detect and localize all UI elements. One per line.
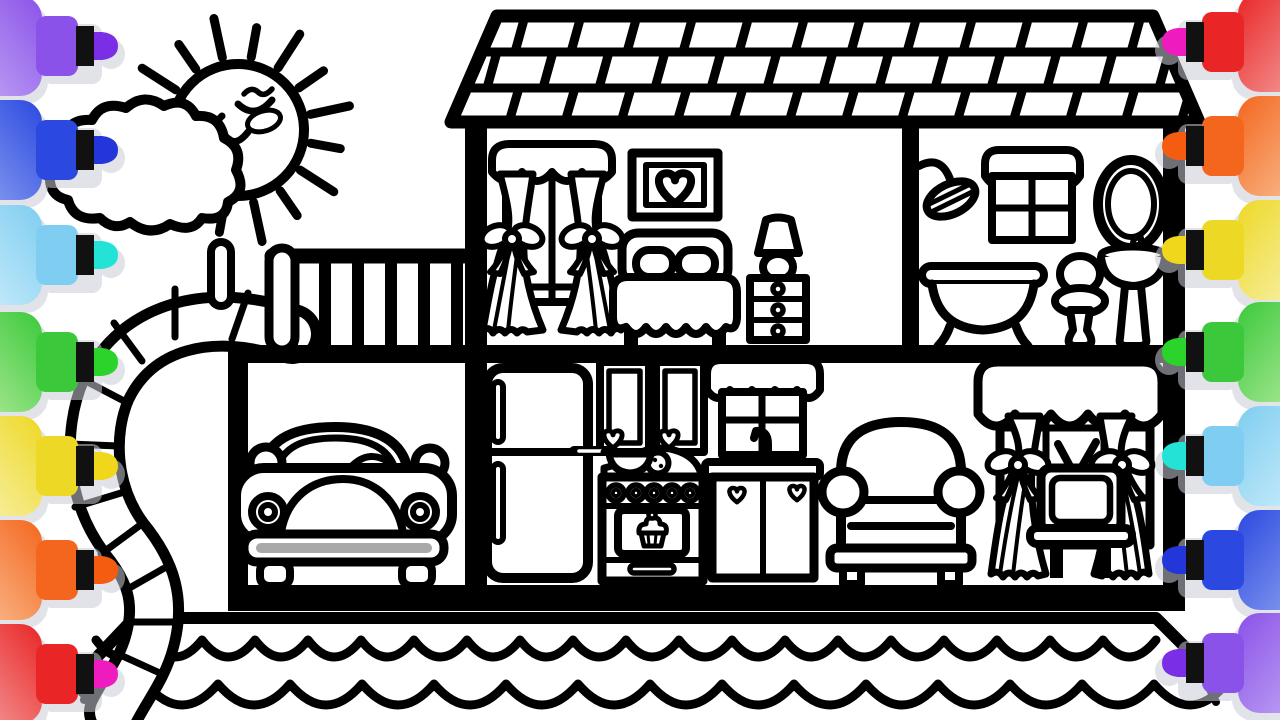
marker-body: [1238, 200, 1280, 300]
armchair-arm-right: [938, 471, 980, 513]
marker-collar: [1186, 643, 1204, 683]
car-wheel-left: [260, 562, 290, 586]
marker-neck: [1202, 12, 1244, 72]
marker-body: [1238, 0, 1280, 92]
interior-wall-upper: [902, 125, 919, 345]
house-base: [228, 585, 1185, 611]
stove: [574, 448, 703, 581]
marker-body: [0, 312, 42, 412]
bed-foot-left: [624, 330, 638, 345]
bathtub-rim: [922, 266, 1044, 284]
marker-body: [0, 100, 42, 200]
marker-collar: [76, 342, 94, 382]
marker-neck: [36, 120, 78, 180]
marker-body: [0, 416, 42, 516]
pedestal-sink: [1101, 238, 1165, 346]
wave-row-2: [74, 684, 1226, 705]
marker-neck: [36, 644, 78, 704]
coloring-page: [0, 0, 1280, 720]
bed-foot-right: [712, 330, 726, 345]
cupcake-cup: [641, 533, 664, 546]
shower-head-icon: [921, 174, 981, 224]
sun-ray: [214, 19, 222, 58]
marker-collar: [76, 26, 94, 66]
kitchen-window: [707, 360, 820, 455]
kitchen: [487, 360, 820, 581]
timer-dot: [659, 464, 663, 468]
railing-post: [269, 248, 295, 350]
marker-neck: [1202, 116, 1244, 176]
armchair-foot-left: [843, 568, 861, 584]
wave-row-1: [96, 640, 1156, 657]
tv-stand-leg-right: [1098, 544, 1111, 578]
garage-car: [236, 427, 452, 586]
marker-collar: [76, 550, 94, 590]
marker-left-purple: [0, 0, 125, 104]
stove-knobs: [608, 485, 698, 501]
bed: [613, 233, 737, 345]
wall-cabinet-2: [656, 362, 704, 452]
marker-neck: [36, 16, 78, 76]
heart-picture: [632, 153, 718, 217]
marker-body: [0, 520, 42, 620]
sun-ray: [311, 143, 341, 148]
bed-blanket: [613, 277, 737, 334]
car-wheel-right: [402, 562, 432, 586]
marker-neck: [1202, 220, 1244, 280]
tv-stand-top: [1030, 528, 1132, 544]
marker-neck: [36, 225, 78, 285]
bedroom: [478, 144, 806, 345]
marker-body: [1238, 302, 1280, 402]
marker-body: [0, 205, 42, 305]
marker-body: [1238, 510, 1280, 610]
mirror-glass: [1108, 171, 1154, 237]
tv-stand-leg-left: [1050, 544, 1063, 578]
marker-collar: [76, 130, 94, 170]
shower: [919, 162, 981, 223]
living-room: [822, 362, 1162, 584]
shower-arm: [919, 162, 951, 182]
bedroom-window: [478, 144, 625, 333]
armchair-foot-right: [941, 568, 959, 584]
ground-edges: [84, 656, 1216, 702]
marker-body: [0, 0, 42, 96]
marker-neck: [1202, 426, 1244, 486]
tv-screen: [1052, 478, 1110, 522]
sun-ray: [278, 34, 300, 68]
marker-neck: [36, 540, 78, 600]
car-bumper-stripe: [256, 543, 432, 553]
marker-body: [1238, 613, 1280, 713]
sun-ray: [300, 170, 334, 192]
sun-ray: [179, 44, 196, 69]
heart-knob-icon: [789, 486, 804, 500]
coloring-page-canvas: [0, 0, 1280, 720]
bathroom-window: [985, 150, 1080, 240]
marker-neck: [36, 436, 78, 496]
frying-pan: [609, 454, 651, 473]
marker-body: [0, 624, 42, 720]
roof: [451, 16, 1199, 122]
marker-collar: [76, 446, 94, 486]
sun-ray: [299, 71, 324, 88]
stove-drawer-handle: [630, 565, 674, 573]
car-headlight-left-inner: [261, 505, 275, 519]
sun-ray: [310, 106, 349, 114]
marker-collar: [1186, 540, 1204, 580]
heart-knob-icon: [729, 488, 744, 502]
toilet: [1055, 256, 1105, 346]
cupcake-cherry: [649, 512, 656, 519]
marker-neck: [1202, 322, 1244, 382]
marker-body: [1238, 96, 1280, 196]
marker-body: [1238, 406, 1280, 506]
bed-pillow-right: [678, 250, 715, 277]
sun-ray: [280, 191, 297, 216]
sun-eyebrow: [244, 89, 272, 94]
heart-knob-icon: [604, 431, 622, 448]
sink-pedestal: [1120, 286, 1147, 346]
sun-ray: [254, 202, 262, 241]
marker-collar: [1186, 230, 1204, 270]
marker-neck: [1202, 633, 1244, 693]
fridge: [487, 368, 588, 578]
bathtub: [922, 266, 1044, 346]
bed-pillow-left: [636, 250, 673, 277]
drawer-knob: [773, 284, 783, 294]
fridge-handle-top: [493, 382, 503, 442]
lamp-shade: [758, 218, 799, 254]
vanity-mirror: [1098, 160, 1164, 248]
marker-collar: [1186, 22, 1204, 62]
drawer-knob: [773, 326, 783, 336]
drawer-knob: [773, 305, 783, 315]
armchair-arm-left: [822, 471, 864, 513]
armchair: [822, 422, 980, 584]
sun-ray: [251, 28, 256, 58]
marker-collar: [1186, 126, 1204, 166]
fridge-handle-bottom: [493, 464, 503, 542]
marker-collar: [76, 235, 94, 275]
ground: [74, 618, 1226, 705]
toilet-base: [1069, 310, 1092, 346]
wall-cabinet-1: [600, 362, 649, 452]
nightstand: [750, 218, 806, 341]
marker-collar: [1186, 436, 1204, 476]
sun-ray: [142, 68, 176, 90]
marker-neck: [1202, 530, 1244, 590]
marker-neck: [36, 332, 78, 392]
bathroom: [919, 150, 1165, 346]
marker-collar: [76, 654, 94, 694]
car-headlight-right-inner: [413, 505, 427, 519]
slide-post: [211, 242, 231, 306]
marker-collar: [1186, 332, 1204, 372]
